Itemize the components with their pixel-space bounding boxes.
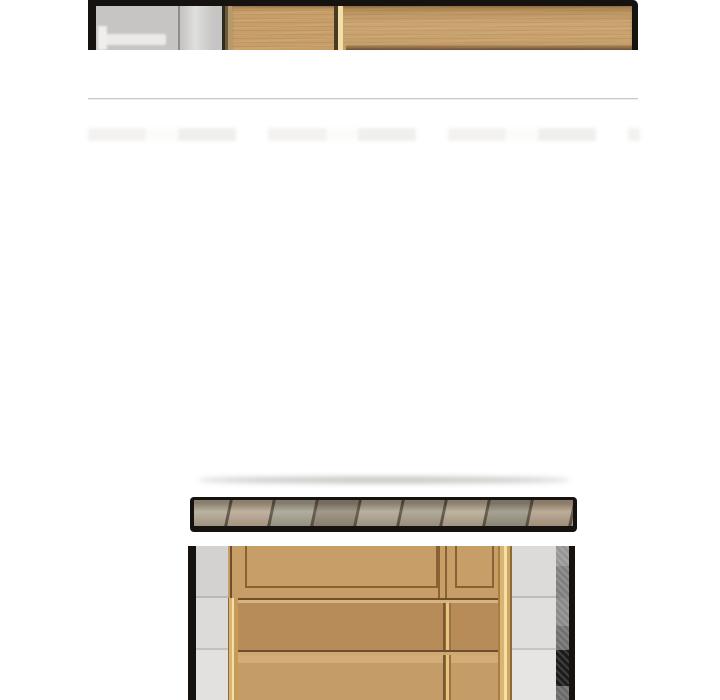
cabinet-dark-edge-strip [556,546,569,700]
faint-image-artifact [88,128,640,141]
door-panel-frame-small [455,546,494,588]
cabinet-top-doors [228,546,512,598]
drawer-vertical-seam [443,603,451,650]
comic-panel-cabinet [188,546,575,700]
wall-highlight [100,34,166,45]
wall-light-band [182,6,214,50]
cabinet-gold-trim-left [228,598,238,700]
drawer-vertical-seam [443,655,451,700]
wood-bottom-shadow [346,44,632,50]
wardrobe-edge-seam [222,6,232,50]
comic-panel-floor-strip [190,497,577,532]
floor-strip-shadow [198,477,570,483]
comic-panel-top [88,0,638,50]
door-divider [438,546,447,598]
cabinet-middle-drawer [228,603,512,650]
cabinet-top-edge-line [230,546,232,598]
panel-top-photo [96,6,632,50]
floor-planks-photo [194,500,573,526]
wall-divider-line [178,6,180,50]
cabinet-side-right [512,546,556,700]
wall-highlight-vertical [98,26,107,50]
wall-gray-section [96,6,222,50]
door-panel-frame-large [245,546,438,588]
dark-strip-texture [556,546,569,700]
floor-lighting-overlay [194,500,573,526]
cabinet-bottom-drawer [228,655,512,700]
cabinet-side-left [196,546,228,700]
cabinet-wood-front [228,546,512,700]
comic-reader-page [0,0,720,700]
cabinet-gold-trim-right [498,546,512,700]
wardrobe-wood-section [232,6,632,50]
divider-line [88,98,638,100]
